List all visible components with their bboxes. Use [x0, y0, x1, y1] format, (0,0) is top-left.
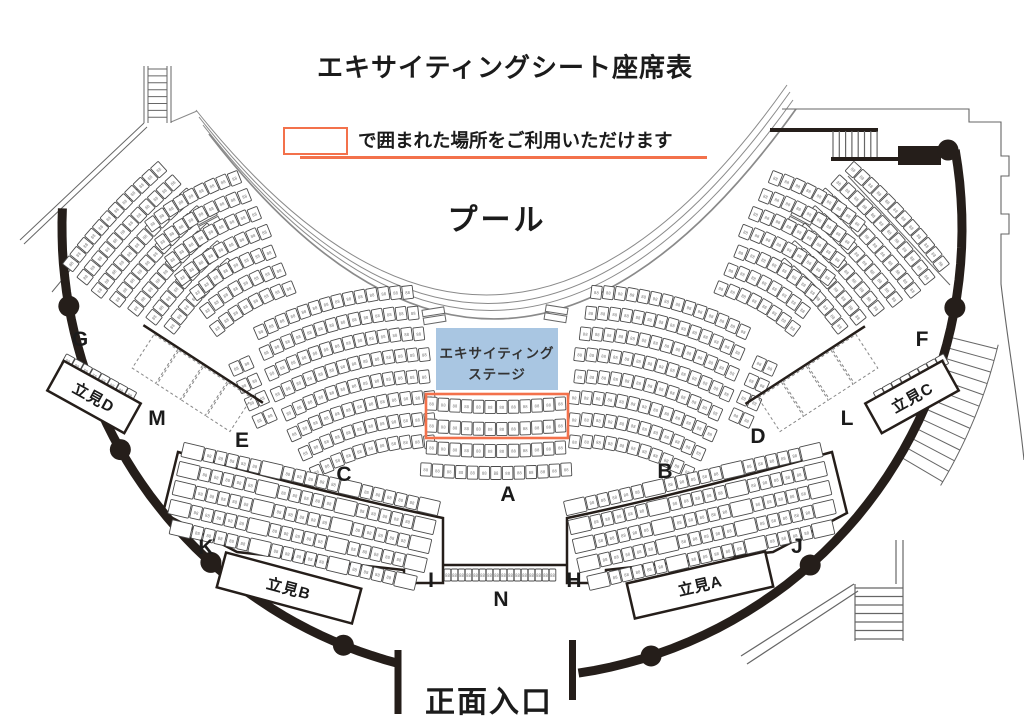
svg-text:88: 88: [459, 573, 464, 578]
svg-text:88: 88: [441, 402, 447, 407]
svg-text:88: 88: [494, 573, 499, 578]
entrance-post-left: [395, 650, 402, 714]
svg-text:88: 88: [552, 468, 558, 473]
svg-text:88: 88: [464, 426, 470, 431]
legend-highlight-swatch: [283, 127, 348, 155]
section-label-K: K: [198, 536, 213, 560]
stage-label-line2: ステージ: [468, 363, 526, 383]
svg-text:88: 88: [499, 427, 504, 432]
svg-text:88: 88: [458, 470, 464, 475]
pillar: [58, 296, 79, 317]
svg-text:88: 88: [523, 448, 529, 453]
svg-text:88: 88: [523, 426, 529, 431]
section-label-N: N: [493, 588, 508, 612]
staircase-top-right: [770, 128, 959, 165]
svg-text:88: 88: [429, 423, 435, 428]
section-seats-C: 8888888888888888888888888888888888888888…: [251, 275, 455, 485]
svg-text:88: 88: [480, 573, 485, 578]
svg-text:88: 88: [464, 448, 470, 453]
svg-text:88: 88: [517, 470, 522, 475]
svg-text:88: 88: [476, 404, 481, 409]
svg-text:88: 88: [487, 573, 492, 578]
legend-underline: [300, 156, 707, 159]
pillar: [110, 439, 131, 460]
svg-text:88: 88: [445, 573, 450, 578]
svg-text:88: 88: [511, 448, 516, 453]
section-label-G: G: [72, 328, 88, 352]
section-label-I: I: [428, 569, 434, 593]
svg-text:88: 88: [464, 404, 470, 409]
svg-text:88: 88: [452, 403, 458, 408]
svg-text:88: 88: [534, 403, 540, 408]
svg-text:88: 88: [558, 445, 564, 450]
svg-text:88: 88: [522, 573, 527, 578]
stage-label-line1: エキサイティング: [440, 342, 555, 362]
page-title: エキサイティングシート座席表: [317, 48, 693, 85]
svg-text:88: 88: [523, 404, 529, 409]
entrance-post-right: [569, 640, 576, 700]
svg-text:88: 88: [470, 470, 475, 475]
svg-text:88: 88: [543, 573, 548, 578]
svg-text:88: 88: [429, 401, 435, 406]
svg-text:88: 88: [536, 573, 541, 578]
svg-text:88: 88: [534, 425, 540, 430]
section-seats-N: 88888888888888888888888888888888: [444, 569, 556, 581]
section-label-F: F: [916, 328, 929, 352]
section-seats-B: 8888888888888888888888888888888888888888…: [550, 275, 754, 485]
svg-text:88: 88: [546, 446, 552, 451]
svg-text:88: 88: [558, 423, 564, 428]
pillar: [333, 635, 354, 656]
svg-text:88: 88: [494, 471, 499, 476]
svg-text:88: 88: [558, 401, 564, 406]
pool-label: プール: [448, 195, 547, 239]
svg-text:88: 88: [435, 468, 441, 473]
svg-text:88: 88: [482, 471, 487, 476]
svg-text:88: 88: [499, 449, 504, 454]
section-label-D: D: [750, 425, 765, 449]
svg-text:88: 88: [488, 449, 493, 454]
svg-text:88: 88: [564, 467, 570, 472]
svg-text:88: 88: [540, 469, 546, 474]
section-label-L: L: [841, 407, 854, 431]
svg-text:88: 88: [423, 467, 429, 472]
svg-text:88: 88: [546, 402, 552, 407]
svg-text:88: 88: [452, 573, 457, 578]
svg-text:88: 88: [505, 471, 510, 476]
svg-text:88: 88: [515, 573, 520, 578]
svg-text:88: 88: [441, 424, 447, 429]
section-seats-D: 8888888888888888: [729, 356, 778, 429]
svg-text:88: 88: [534, 447, 540, 452]
section-label-A: A: [500, 483, 515, 507]
section-label-M: M: [148, 407, 166, 431]
svg-text:88: 88: [511, 426, 516, 431]
section-label-C: C: [336, 463, 351, 487]
svg-text:88: 88: [466, 573, 471, 578]
svg-text:88: 88: [529, 573, 534, 578]
svg-text:88: 88: [441, 446, 447, 451]
svg-text:88: 88: [452, 425, 458, 430]
seating-chart: 8888888888888888888888888888888888888888…: [0, 0, 1024, 723]
svg-text:88: 88: [488, 427, 493, 432]
svg-text:88: 88: [476, 426, 481, 431]
section-label-J: J: [791, 535, 803, 559]
svg-text:88: 88: [529, 470, 535, 475]
legend-text: で囲まれた場所をご利用いただけます: [358, 127, 673, 153]
svg-text:88: 88: [511, 404, 516, 409]
section-label-H: H: [566, 569, 581, 593]
section-label-B: B: [657, 460, 672, 484]
svg-text:88: 88: [499, 405, 504, 410]
svg-text:88: 88: [550, 573, 555, 578]
svg-text:88: 88: [501, 573, 506, 578]
svg-text:88: 88: [452, 447, 458, 452]
pillar: [641, 645, 662, 666]
svg-text:88: 88: [546, 424, 552, 429]
svg-text:88: 88: [476, 448, 481, 453]
wall-block: [898, 146, 941, 165]
svg-text:88: 88: [447, 469, 453, 474]
entrance-label: 正面入口: [425, 677, 553, 721]
svg-text:88: 88: [429, 445, 435, 450]
svg-text:88: 88: [473, 573, 478, 578]
section-label-E: E: [235, 429, 249, 453]
svg-text:88: 88: [488, 405, 493, 410]
svg-text:88: 88: [508, 573, 513, 578]
staircase-top-left: [20, 66, 171, 244]
pillar: [944, 297, 965, 318]
